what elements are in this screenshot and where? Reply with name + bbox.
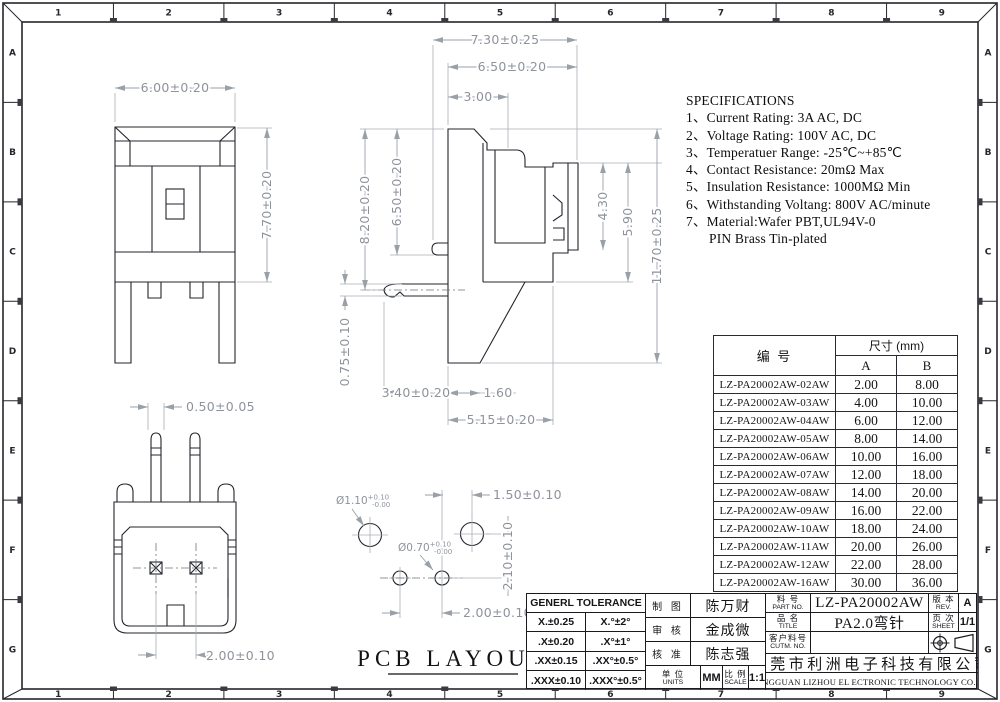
grid-row-label: E bbox=[985, 446, 991, 456]
cell-vb: 20.00 bbox=[897, 484, 958, 502]
tolerance-title: GENERL TOLERANCE bbox=[527, 594, 646, 613]
dim-side-total-width: 7.30±0.25 bbox=[471, 32, 540, 47]
dim-base-width: 5.15±0.20 bbox=[467, 412, 536, 427]
cell-va: 10.00 bbox=[836, 448, 897, 466]
cell-part: LZ-PA20002AW-10AW bbox=[714, 520, 836, 538]
company-name-cn: 东莞市利洲电子科技有限公司 bbox=[766, 654, 978, 673]
sheet-value: 1/1 bbox=[959, 613, 976, 632]
table-row: LZ-PA20002AW-11AW20.0026.00 bbox=[714, 538, 958, 556]
cell-part: LZ-PA20002AW-09AW bbox=[714, 502, 836, 520]
tol-ang-3: .XX°±0.5° bbox=[586, 652, 646, 671]
cell-vb: 8.00 bbox=[897, 376, 958, 394]
grid-tick bbox=[662, 18, 669, 23]
cell-va: 20.00 bbox=[836, 538, 897, 556]
grid-tick bbox=[441, 687, 448, 692]
units-label: 单 位 UNITS bbox=[646, 666, 701, 690]
grid-row-label: D bbox=[984, 347, 991, 357]
units-value: MM bbox=[701, 666, 723, 690]
customer-label: 客户料号 CUTM. NO. bbox=[766, 632, 811, 654]
spec-item: 7、Material:Wafer PBT,UL94V-0 bbox=[686, 213, 978, 230]
dim-pcb-offset-x: 1.50±0.10 bbox=[493, 487, 562, 502]
scale-label: 比 例 SCALE bbox=[723, 666, 749, 690]
grid-tick bbox=[18, 198, 23, 205]
cell-vb: 16.00 bbox=[897, 448, 958, 466]
role-drawn: 制 图 bbox=[646, 594, 691, 618]
dim-side-boss-height: 6.50±0.20 bbox=[389, 158, 404, 227]
col-header-a: A bbox=[836, 356, 897, 376]
dim-front-height: 7.70±0.20 bbox=[259, 171, 274, 240]
grid-col-label: 8 bbox=[828, 9, 834, 19]
cell-vb: 18.00 bbox=[897, 466, 958, 484]
dim-side-total-height: 11.70±0.25 bbox=[649, 207, 664, 284]
customer-value bbox=[811, 632, 929, 654]
grid-col-label: 6 bbox=[607, 9, 613, 19]
grid-tick bbox=[978, 298, 983, 305]
grid-tick bbox=[441, 18, 448, 23]
cell-va: 30.00 bbox=[836, 574, 897, 592]
grid-row-label: F bbox=[9, 546, 15, 556]
cell-vb: 26.00 bbox=[897, 538, 958, 556]
grid-row-label: F bbox=[985, 546, 991, 556]
grid-col-label: 3 bbox=[276, 690, 282, 700]
spec-item: 3、Temperatuer Range: -25℃~+85℃ bbox=[686, 144, 978, 161]
front-view: 6.00±0.20 7.70±0.20 bbox=[115, 80, 274, 363]
role-checked: 审 核 bbox=[646, 618, 691, 642]
grid-col-label: 4 bbox=[386, 690, 392, 700]
dim-front-width: 6.00±0.20 bbox=[141, 80, 210, 95]
grid-row-label: A bbox=[985, 49, 992, 59]
spec-item: 5、Insulation Resistance: 1000MΩ Min bbox=[686, 178, 978, 195]
dim-pcb-pitch: 2.00±0.10 bbox=[463, 605, 532, 620]
cell-part: LZ-PA20002AW-03AW bbox=[714, 394, 836, 412]
grid-col-label: 2 bbox=[166, 9, 172, 19]
tol-ang-1: X.°±2° bbox=[586, 613, 646, 632]
grid-tick bbox=[978, 596, 983, 603]
grid-row-label: G bbox=[9, 645, 16, 655]
grid-tick bbox=[110, 687, 117, 692]
grid-col-label: 7 bbox=[718, 9, 724, 19]
grid-tick bbox=[18, 497, 23, 504]
cell-part: LZ-PA20002AW-16AW bbox=[714, 574, 836, 592]
grid-tick bbox=[18, 99, 23, 106]
grid-row-label: E bbox=[9, 446, 15, 456]
grid-tick bbox=[978, 99, 983, 106]
spec-item: 6、Withstanding Voltang: 800V AC/minute bbox=[686, 196, 978, 213]
callout-hole-large: Ø1.10+0.10-0.00 bbox=[336, 494, 390, 510]
cell-va: 12.00 bbox=[836, 466, 897, 484]
cell-vb: 36.00 bbox=[897, 574, 958, 592]
col-header-part: 编 号 bbox=[714, 336, 836, 376]
table-row: LZ-PA20002AW-12AW22.0028.00 bbox=[714, 556, 958, 574]
grid-tick bbox=[978, 198, 983, 205]
grid-tick bbox=[18, 397, 23, 404]
product-value: PA2.0弯针 bbox=[811, 613, 929, 632]
cell-part: LZ-PA20002AW-05AW bbox=[714, 430, 836, 448]
cell-part: LZ-PA20002AW-02AW bbox=[714, 376, 836, 394]
grid-col-label: 4 bbox=[386, 9, 392, 19]
title-block: GENERL TOLERANCE X.±0.25 X.°±2° .X±0.20 … bbox=[526, 593, 977, 689]
cell-va: 16.00 bbox=[836, 502, 897, 520]
cell-va: 2.00 bbox=[836, 376, 897, 394]
spec-item: 2、Voltage Rating: 100V AC, DC bbox=[686, 127, 978, 144]
product-label: 品 名 TITLE bbox=[766, 613, 811, 632]
grid-col-label: 5 bbox=[497, 690, 503, 700]
name-drawn: 陈万财 bbox=[691, 594, 766, 618]
dim-side-housing-width: 6.50±0.20 bbox=[478, 59, 547, 74]
grid-tick bbox=[220, 687, 227, 692]
table-row: LZ-PA20002AW-07AW12.0018.00 bbox=[714, 466, 958, 484]
pcb-layout-title: PCB LAYOUT bbox=[357, 646, 549, 671]
dim-base-foot: 1.60 bbox=[483, 385, 512, 400]
cell-part: LZ-PA20002AW-06AW bbox=[714, 448, 836, 466]
projection-symbol-cell bbox=[929, 632, 976, 654]
tol-lin-1: X.±0.25 bbox=[527, 613, 586, 632]
cell-part: LZ-PA20002AW-08AW bbox=[714, 484, 836, 502]
grid-tick bbox=[110, 18, 117, 23]
grid-col-label: 1 bbox=[55, 9, 61, 19]
name-checked: 金成微 bbox=[691, 618, 766, 642]
cell-va: 6.00 bbox=[836, 412, 897, 430]
grid-tick bbox=[220, 18, 227, 23]
grid-col-label: 2 bbox=[166, 690, 172, 700]
grid-tick bbox=[978, 397, 983, 404]
company-name-en: DONGGUAN LIZHOU EL ECTRONIC TECHNOLOGY C… bbox=[766, 673, 978, 690]
col-header-b: B bbox=[897, 356, 958, 376]
dim-tail-pitch: 2.00±0.10 bbox=[206, 648, 275, 663]
grid-col-label: 8 bbox=[828, 690, 834, 700]
table-row: LZ-PA20002AW-06AW10.0016.00 bbox=[714, 448, 958, 466]
dim-side-step: 3.00 bbox=[463, 89, 492, 104]
part-no-value: LZ-PA20002AW bbox=[811, 594, 929, 613]
table-row: LZ-PA20002AW-04AW6.0012.00 bbox=[714, 412, 958, 430]
name-approved: 陈志强 bbox=[691, 642, 766, 666]
rev-value: A bbox=[959, 594, 976, 613]
grid-tick bbox=[978, 497, 983, 504]
specifications-title: SPECIFICATIONS bbox=[686, 92, 978, 109]
cell-va: 4.00 bbox=[836, 394, 897, 412]
grid-col-label: 1 bbox=[55, 690, 61, 700]
grid-col-label: 9 bbox=[939, 690, 945, 700]
rev-label: 版 本 REV. bbox=[929, 594, 959, 613]
specifications-list: 1、Current Rating: 3A AC, DC2、Voltage Rat… bbox=[686, 109, 978, 230]
table-row: LZ-PA20002AW-10AW18.0024.00 bbox=[714, 520, 958, 538]
table-row: LZ-PA20002AW-05AW8.0014.00 bbox=[714, 430, 958, 448]
grid-tick bbox=[331, 18, 338, 23]
tol-lin-3: .XX±0.15 bbox=[527, 652, 586, 671]
grid-col-label: 3 bbox=[276, 9, 282, 19]
specifications-block: SPECIFICATIONS 1、Current Rating: 3A AC, … bbox=[686, 92, 978, 248]
cell-vb: 10.00 bbox=[897, 394, 958, 412]
role-approved: 核 准 bbox=[646, 642, 691, 666]
cell-va: 14.00 bbox=[836, 484, 897, 502]
table-row: LZ-PA20002AW-02AW2.008.00 bbox=[714, 376, 958, 394]
dim-tail-width: 0.50±0.05 bbox=[186, 399, 255, 414]
tol-lin-4: .XXX±0.10 bbox=[527, 671, 586, 690]
tol-ang-4: .XXX°±0.5° bbox=[586, 671, 646, 690]
grid-row-label: C bbox=[9, 248, 16, 258]
sheet-label: 页 次 SHEET bbox=[929, 613, 959, 632]
table-row: LZ-PA20002AW-16AW30.0036.00 bbox=[714, 574, 958, 592]
cell-va: 18.00 bbox=[836, 520, 897, 538]
col-header-size: 尺寸 (mm) bbox=[836, 336, 958, 356]
grid-tick bbox=[331, 687, 338, 692]
grid-row-label: D bbox=[9, 347, 16, 357]
spec-item: 1、Current Rating: 3A AC, DC bbox=[686, 109, 978, 126]
cell-part: LZ-PA20002AW-07AW bbox=[714, 466, 836, 484]
dim-side-plate-height: 4.30 bbox=[595, 191, 610, 220]
tol-lin-2: .X±0.20 bbox=[527, 632, 586, 652]
cell-vb: 12.00 bbox=[897, 412, 958, 430]
spec-item: 4、Contact Resistance: 20mΩ Max bbox=[686, 161, 978, 178]
cell-part: LZ-PA20002AW-11AW bbox=[714, 538, 836, 556]
dim-pin-length: 3.40±0.20 bbox=[382, 385, 451, 400]
part-no-label: 料 号 PART NO. bbox=[766, 594, 811, 613]
dim-side-pin-height: 8.20±0.20 bbox=[357, 176, 372, 245]
grid-row-label: A bbox=[9, 49, 16, 59]
grid-tick bbox=[773, 18, 780, 23]
parts-table: 编 号 尺寸 (mm) A B LZ-PA20002AW-02AW2.008.0… bbox=[713, 335, 958, 592]
tol-ang-2: .X°±1° bbox=[586, 632, 646, 652]
grid-col-label: 9 bbox=[939, 9, 945, 19]
table-row: LZ-PA20002AW-03AW4.0010.00 bbox=[714, 394, 958, 412]
drawing-sheet: 112233445566778899AABBCCDDEEFFGG 6.00±0.… bbox=[0, 0, 1000, 702]
scale-value: 1:1 bbox=[749, 666, 766, 690]
grid-row-label: G bbox=[984, 645, 991, 655]
grid-tick bbox=[18, 298, 23, 305]
cell-vb: 24.00 bbox=[897, 520, 958, 538]
cell-part: LZ-PA20002AW-04AW bbox=[714, 412, 836, 430]
grid-col-label: 7 bbox=[718, 690, 724, 700]
side-view: 7.30±0.25 6.50±0.20 3.00 8.20±0.20 6.50±… bbox=[337, 32, 664, 427]
cell-va: 8.00 bbox=[836, 430, 897, 448]
top-view: 0.50±0.05 2.00±0.10 bbox=[114, 399, 275, 663]
grid-row-label: B bbox=[9, 148, 16, 158]
grid-tick bbox=[552, 18, 559, 23]
table-row: LZ-PA20002AW-09AW16.0022.00 bbox=[714, 502, 958, 520]
grid-col-label: 6 bbox=[607, 690, 613, 700]
cell-vb: 14.00 bbox=[897, 430, 958, 448]
grid-row-label: C bbox=[985, 248, 992, 258]
grid-row-label: B bbox=[985, 148, 992, 158]
dim-pin-thickness: 0.75±0.10 bbox=[337, 318, 352, 387]
grid-tick bbox=[18, 596, 23, 603]
cell-part: LZ-PA20002AW-12AW bbox=[714, 556, 836, 574]
dim-side-shroud-height: 5.90 bbox=[620, 207, 635, 236]
grid-tick bbox=[883, 18, 890, 23]
grid-col-label: 5 bbox=[497, 9, 503, 19]
cell-vb: 22.00 bbox=[897, 502, 958, 520]
callout-hole-small: Ø0.70+0.10-0.00 bbox=[398, 541, 452, 557]
table-row: LZ-PA20002AW-08AW14.0020.00 bbox=[714, 484, 958, 502]
cell-va: 22.00 bbox=[836, 556, 897, 574]
spec-item-continuation: PIN Brass Tin-plated bbox=[686, 230, 978, 247]
cell-vb: 28.00 bbox=[897, 556, 958, 574]
dim-pcb-offset-y: 2.10±0.10 bbox=[500, 522, 515, 591]
third-angle-projection-icon bbox=[929, 633, 976, 653]
